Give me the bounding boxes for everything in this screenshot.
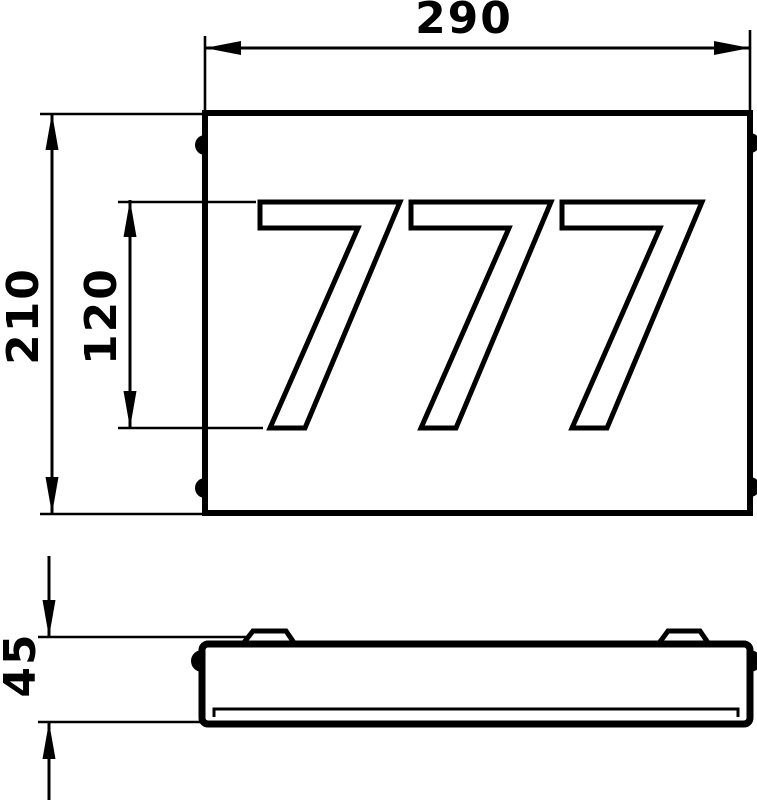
arrowhead-up-icon [43, 722, 56, 759]
dimension-width-label: 290 [415, 0, 513, 44]
side-view [191, 631, 757, 724]
side-profile-body [202, 644, 750, 724]
dimension-height-label: 210 [0, 267, 49, 365]
side-bump-right [750, 650, 757, 672]
technical-drawing: 290 210 120 45 [0, 0, 757, 800]
arrowhead-right-icon [714, 41, 750, 55]
arrowhead-down-icon [43, 600, 56, 637]
dimension-depth-label: 45 [0, 632, 46, 697]
mount-bump-right-top [750, 133, 757, 153]
arrowhead-up-icon [124, 200, 137, 237]
side-bump-left [191, 650, 202, 672]
mount-bump-left-bottom [195, 478, 205, 498]
arrowhead-down-icon [46, 477, 59, 514]
dimension-width: 290 [205, 0, 750, 111]
mount-bump-right-bottom [750, 477, 757, 497]
arrowhead-down-icon [124, 391, 137, 428]
front-view [195, 113, 757, 513]
arrowhead-left-icon [205, 41, 241, 55]
mount-bump-left-top [195, 135, 205, 155]
dimension-digit-height-label: 120 [76, 267, 127, 365]
arrowhead-up-icon [46, 113, 59, 150]
